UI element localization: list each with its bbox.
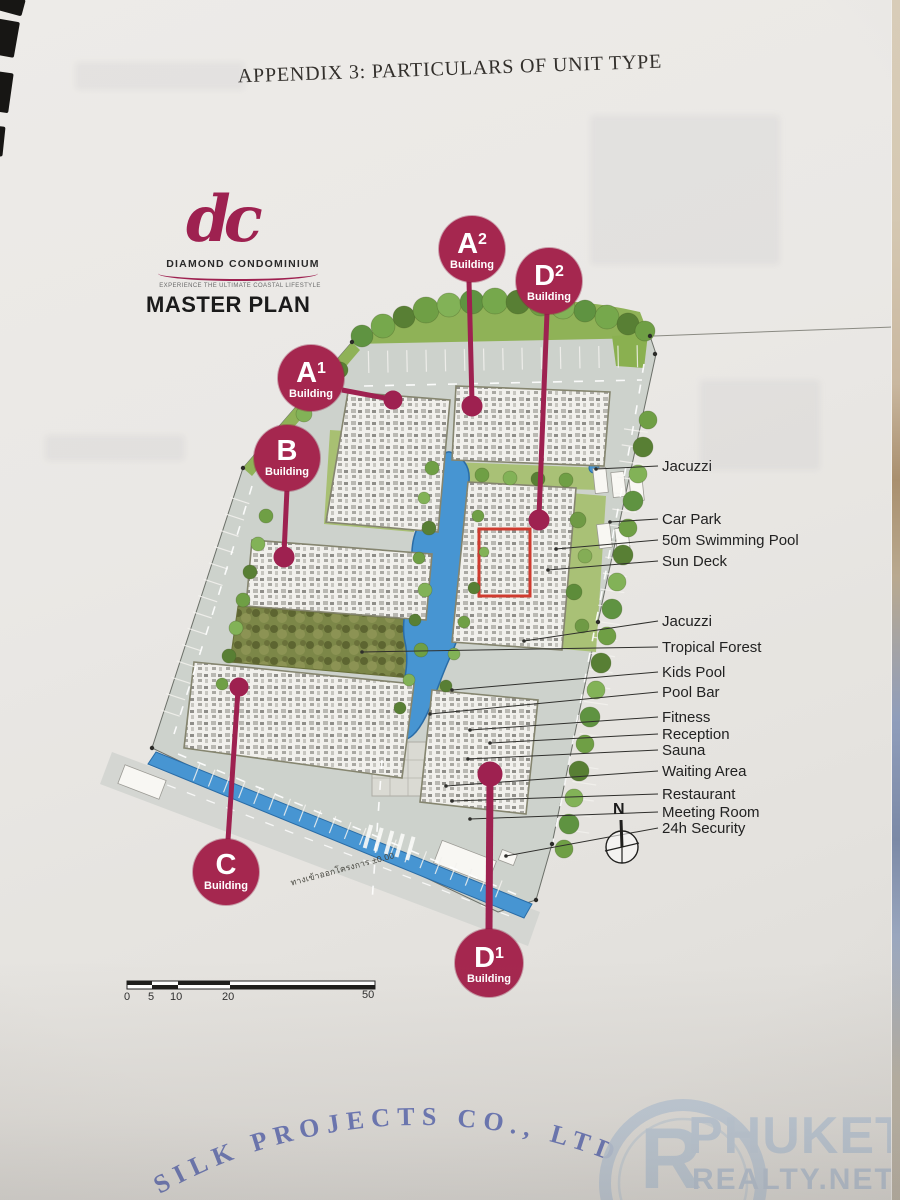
amenity-label-meeting-room: Meeting Room (662, 804, 760, 821)
amenity-label-fitness: Fitness (662, 709, 710, 726)
bleed-through-blob (75, 62, 245, 90)
amenity-label-reception: Reception (662, 726, 730, 743)
logo-tagline: EXPERIENCE THE ULTIMATE COASTAL LIFESTYL… (140, 283, 340, 289)
bleed-through-blob (700, 380, 820, 470)
amenity-label-pool-bar: Pool Bar (662, 684, 720, 701)
scale-bar (127, 981, 375, 989)
amenity-label-jacuzzi-south: Jacuzzi (662, 613, 712, 630)
adjacent-page-edge (891, 0, 900, 1200)
scale-tick-50: 50 (362, 989, 374, 1001)
scale-tick-5: 5 (148, 991, 154, 1003)
amenity-label-tropical-forest: Tropical Forest (662, 639, 761, 656)
pin-building-d2: D2 Building (516, 248, 582, 314)
bleed-through-blob (590, 115, 780, 265)
pin-building-b: B Building (254, 425, 320, 491)
amenity-label-kids-pool: Kids Pool (662, 664, 725, 681)
dc-logo-monogram: dc (186, 188, 256, 252)
amenity-label-sauna: Sauna (662, 742, 705, 759)
watermark-realty: REALTY.NET (692, 1163, 895, 1197)
logo-swoosh-line (158, 266, 318, 281)
amenity-label-sun-deck: Sun Deck (662, 553, 727, 570)
pin-building-c: C Building (193, 839, 259, 905)
amenity-label-security: 24h Security (662, 820, 745, 837)
amenity-label-waiting-area: Waiting Area (662, 763, 747, 780)
watermark-phuket: PHUKET (688, 1106, 900, 1166)
amenity-label-restaurant: Restaurant (662, 786, 735, 803)
pin-building-a2: A2 Building (439, 216, 505, 282)
scale-tick-20: 20 (222, 991, 234, 1003)
document-photo-page: APPENDIX 3: PARTICULARS OF UNIT TYPE dc … (0, 0, 900, 1200)
compass-rose (605, 820, 639, 863)
master-plan-title: MASTER PLAN (146, 292, 356, 318)
amenity-label-swimming-pool: 50m Swimming Pool (662, 532, 799, 549)
scale-tick-10: 10 (170, 991, 182, 1003)
amenity-label-car-park: Car Park (662, 511, 721, 528)
scale-tick-0: 0 (124, 991, 130, 1003)
pin-building-a1: A1 Building (278, 345, 344, 411)
bleed-through-blob (45, 435, 185, 461)
compass-north-label: N (613, 801, 625, 819)
pin-building-d1: D1 Building (455, 929, 523, 997)
svg-text:SILK PROJECTS CO., LTD: SILK PROJECTS CO., LTD (149, 1102, 626, 1200)
stamp-text: SILK PROJECTS CO., LTD (149, 1102, 626, 1200)
